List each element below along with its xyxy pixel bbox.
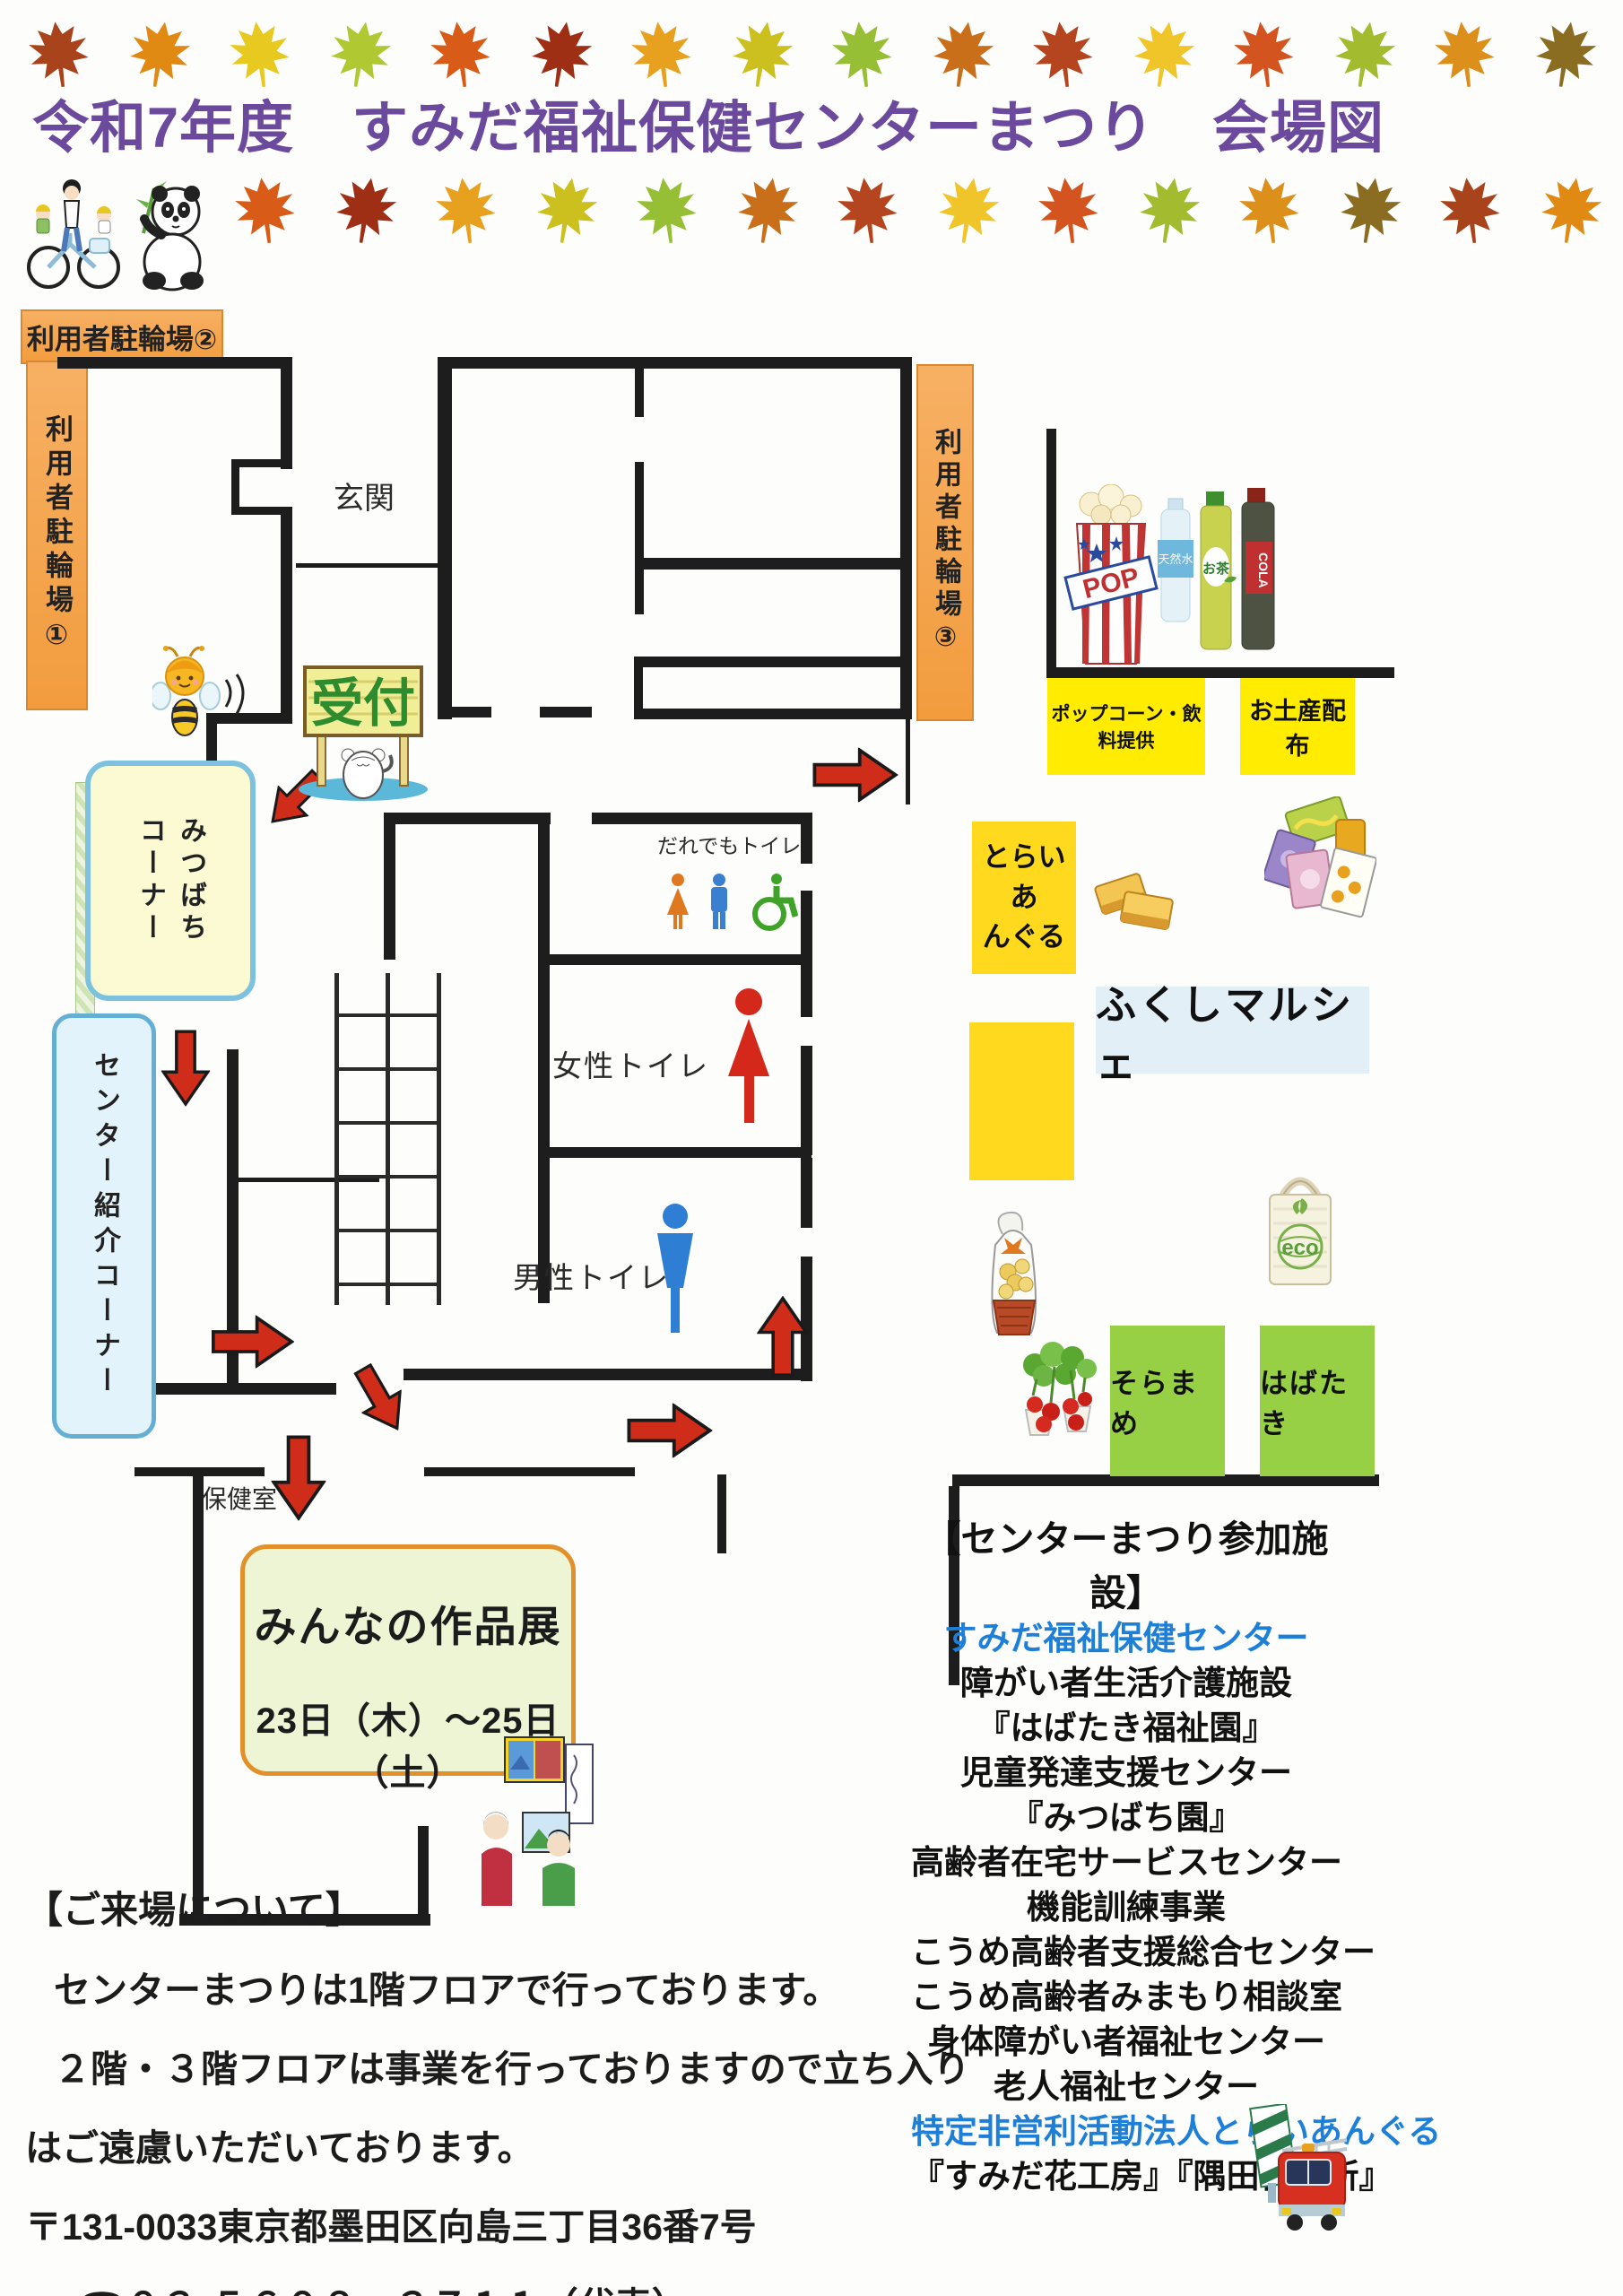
anyone-toilet-label: だれでもトイレ	[657, 829, 801, 859]
men-toilet-label: 男性トイレ	[513, 1254, 670, 1297]
reception-sign: 受付	[296, 660, 430, 802]
staircase	[386, 973, 390, 1305]
women-toilet-label: 女性トイレ	[552, 1042, 709, 1085]
exhibition-title: みんなの作品展	[245, 1592, 571, 1654]
facility-item: 障がい者生活介護施設	[911, 1661, 1341, 1706]
wall	[1046, 429, 1056, 667]
wall	[635, 462, 644, 614]
svg-text:受付: 受付	[311, 674, 415, 733]
soramame-booth-label: そらまめ	[1110, 1326, 1225, 1476]
wall	[384, 813, 395, 960]
visit-info: 【ご来場について】 センターまつりは1階フロアで行っております。 ２階・３階フロ…	[25, 1880, 931, 2296]
maple-leaf-icon	[1232, 174, 1308, 250]
visit-info-line2: ２階・３階フロアは事業を行っておりますので立ち入り	[54, 2039, 931, 2092]
triangle-booth-label: とらいあ んぐる	[972, 822, 1076, 974]
facility-item: こうめ高齢者支援総合センター	[911, 1930, 1341, 1975]
maple-leaf-icon	[930, 173, 1008, 251]
facility-item: 児童発達支援センター	[911, 1751, 1341, 1796]
wall	[424, 1467, 635, 1476]
door-line	[906, 719, 910, 804]
facility-item: 高齢者在宅サービスセンター	[911, 1840, 1341, 1885]
art-viewers-illustration	[471, 1726, 596, 1906]
parking-area-1-label: 利用者駐輪場①	[26, 361, 88, 710]
accessible-toilet-icons	[664, 872, 798, 936]
wall	[404, 1369, 811, 1380]
women-toilet-icon	[723, 987, 775, 1128]
man-icon	[711, 874, 727, 929]
direction-arrow	[161, 1031, 210, 1107]
facility-item: 機能訓練事業	[911, 1885, 1341, 1930]
wall	[281, 357, 292, 469]
wall	[801, 813, 812, 864]
facility-item: 老人福祉センター	[911, 2065, 1341, 2109]
wall	[717, 1474, 726, 1553]
visit-info-header: 【ご来場について】	[25, 1880, 931, 1935]
maple-leaf-icon	[1532, 173, 1610, 251]
maple-leaf-icon	[1131, 173, 1209, 251]
wall	[550, 954, 811, 965]
health-room-label: 保健室	[202, 1480, 277, 1516]
entrance-label: 玄関	[334, 474, 395, 517]
cola-bottle-icon: COLA	[1242, 488, 1274, 649]
refreshments-illustration: POP 天然水 お茶	[1061, 484, 1294, 668]
door-line	[296, 563, 438, 568]
staircase	[334, 1229, 441, 1232]
maple-leaf-icon	[830, 174, 907, 250]
staircase	[437, 973, 441, 1305]
bicycle-family-icon	[25, 169, 122, 291]
maple-leaf-icon	[327, 173, 405, 251]
staircase	[334, 1067, 441, 1071]
maple-leaf-icon	[1527, 17, 1605, 95]
maple-leaf-icon	[228, 174, 304, 250]
wall	[438, 357, 912, 369]
staircase	[334, 973, 339, 1305]
flyer-page: 令和7年度 すみだ福祉保健センターまつり 会場図 利用者駐輪場② 利用者駐輪場①…	[0, 0, 1623, 2296]
direction-arrow	[813, 748, 898, 803]
svg-text:お茶: お茶	[1202, 561, 1230, 577]
habataki-booth-label: はばたき	[1260, 1326, 1375, 1476]
svg-text:eco: eco	[1281, 1236, 1318, 1260]
wall	[142, 1383, 336, 1395]
parking-area-2-label: 利用者駐輪場②	[21, 309, 223, 364]
maple-leaf-icon	[1031, 174, 1107, 250]
wall	[448, 707, 491, 717]
maple-leaf-icon	[429, 174, 505, 250]
maple-leaf-icon	[1428, 18, 1504, 94]
tea-bottle-icon: お茶	[1201, 491, 1237, 649]
woman-icon	[667, 874, 689, 929]
men-toilet-icon	[653, 1202, 698, 1338]
fire-truck-icon	[1239, 2104, 1354, 2231]
bee-motion-lines-icon	[219, 671, 249, 717]
wheelchair-icon	[755, 874, 795, 928]
wall	[384, 813, 551, 824]
wall	[231, 459, 292, 467]
visit-info-line1: センターまつりは1階フロアで行っております。	[54, 1960, 931, 2013]
wall	[540, 707, 592, 717]
parking-area-3-label: 利用者駐輪場③	[916, 364, 974, 721]
wall	[634, 709, 903, 719]
wall	[538, 813, 550, 1303]
wall	[193, 1476, 204, 1918]
maple-leaf-icon	[528, 173, 606, 251]
facility-item: こうめ高齢者みまもり相談室	[911, 1975, 1341, 2020]
facility-item: すみだ福祉保健センター	[911, 1616, 1341, 1661]
popcorn-cup-icon: POP	[1065, 484, 1157, 664]
facility-item: 『みつばち園』	[911, 1796, 1341, 1840]
wall	[634, 657, 903, 667]
direction-arrow	[628, 1404, 713, 1458]
direction-arrow	[757, 1296, 809, 1377]
staircase	[334, 1283, 441, 1286]
water-bottle-icon: 天然水	[1158, 499, 1193, 622]
address: 〒131-0033東京都墨田区向島三丁目36番7号	[25, 2196, 931, 2250]
staircase	[334, 1121, 441, 1125]
staircase	[334, 1175, 441, 1178]
eco-bag-icon: eco	[1257, 1164, 1342, 1291]
wall	[801, 1158, 812, 1228]
facility-item: 『はばたき福祉園』	[911, 1706, 1341, 1751]
wall	[281, 511, 292, 722]
svg-text:天然水: 天然水	[1158, 552, 1193, 566]
center-intro-corner-box: センター紹介コーナー	[52, 1013, 156, 1439]
bee-icon	[152, 644, 221, 744]
wall	[57, 357, 292, 369]
svg-text:COLA: COLA	[1256, 552, 1271, 588]
strawberry-plants-icon	[1015, 1340, 1107, 1451]
maple-leaf-icon	[1433, 174, 1509, 250]
maple-leaf-icon	[629, 174, 706, 250]
wall	[135, 1467, 265, 1476]
maple-leaf-icon	[1332, 173, 1410, 251]
snacks-icon	[1264, 796, 1376, 931]
wall	[801, 1046, 812, 1155]
direction-arrow	[212, 1316, 294, 1369]
wall	[438, 357, 452, 719]
wall	[1046, 667, 1394, 678]
page-title: 令和7年度 すみだ福祉保健センターまつり 会場図	[32, 83, 1384, 164]
wall	[643, 558, 903, 570]
popcorn-booth-label: ポップコーン・飲料提供	[1047, 678, 1205, 775]
maple-leaf-icon	[729, 173, 807, 251]
wall	[801, 967, 812, 1017]
visit-info-line3: はご遠慮いただいております。	[25, 2118, 931, 2171]
triangle-booth-area-2	[969, 1022, 1074, 1180]
phone-number: ☎０３-５６０８－３７１１（代表）	[79, 2275, 931, 2296]
facility-item: 身体障がい者福祉センター	[911, 2020, 1341, 2065]
staircase	[334, 1013, 441, 1017]
souvenir-booth-label: お土産配布	[1240, 678, 1355, 775]
mitsubachi-corner-box: みつばち コーナー	[85, 761, 256, 1001]
facility-list: 【センターまつり参加施設】 すみだ福祉保健センター障がい者生活介護施設『はばたき…	[911, 1509, 1341, 2199]
wall	[635, 357, 644, 417]
gift-bag-icon	[983, 1207, 1046, 1344]
castella-icon	[1090, 859, 1176, 938]
wall	[592, 813, 811, 824]
panda-icon	[124, 176, 213, 292]
wall	[545, 1147, 811, 1158]
direction-arrow	[272, 1436, 326, 1521]
facility-list-header: 【センターまつり参加施設】	[911, 1509, 1341, 1616]
marche-label: ふくしマルシェ	[1096, 987, 1369, 1074]
